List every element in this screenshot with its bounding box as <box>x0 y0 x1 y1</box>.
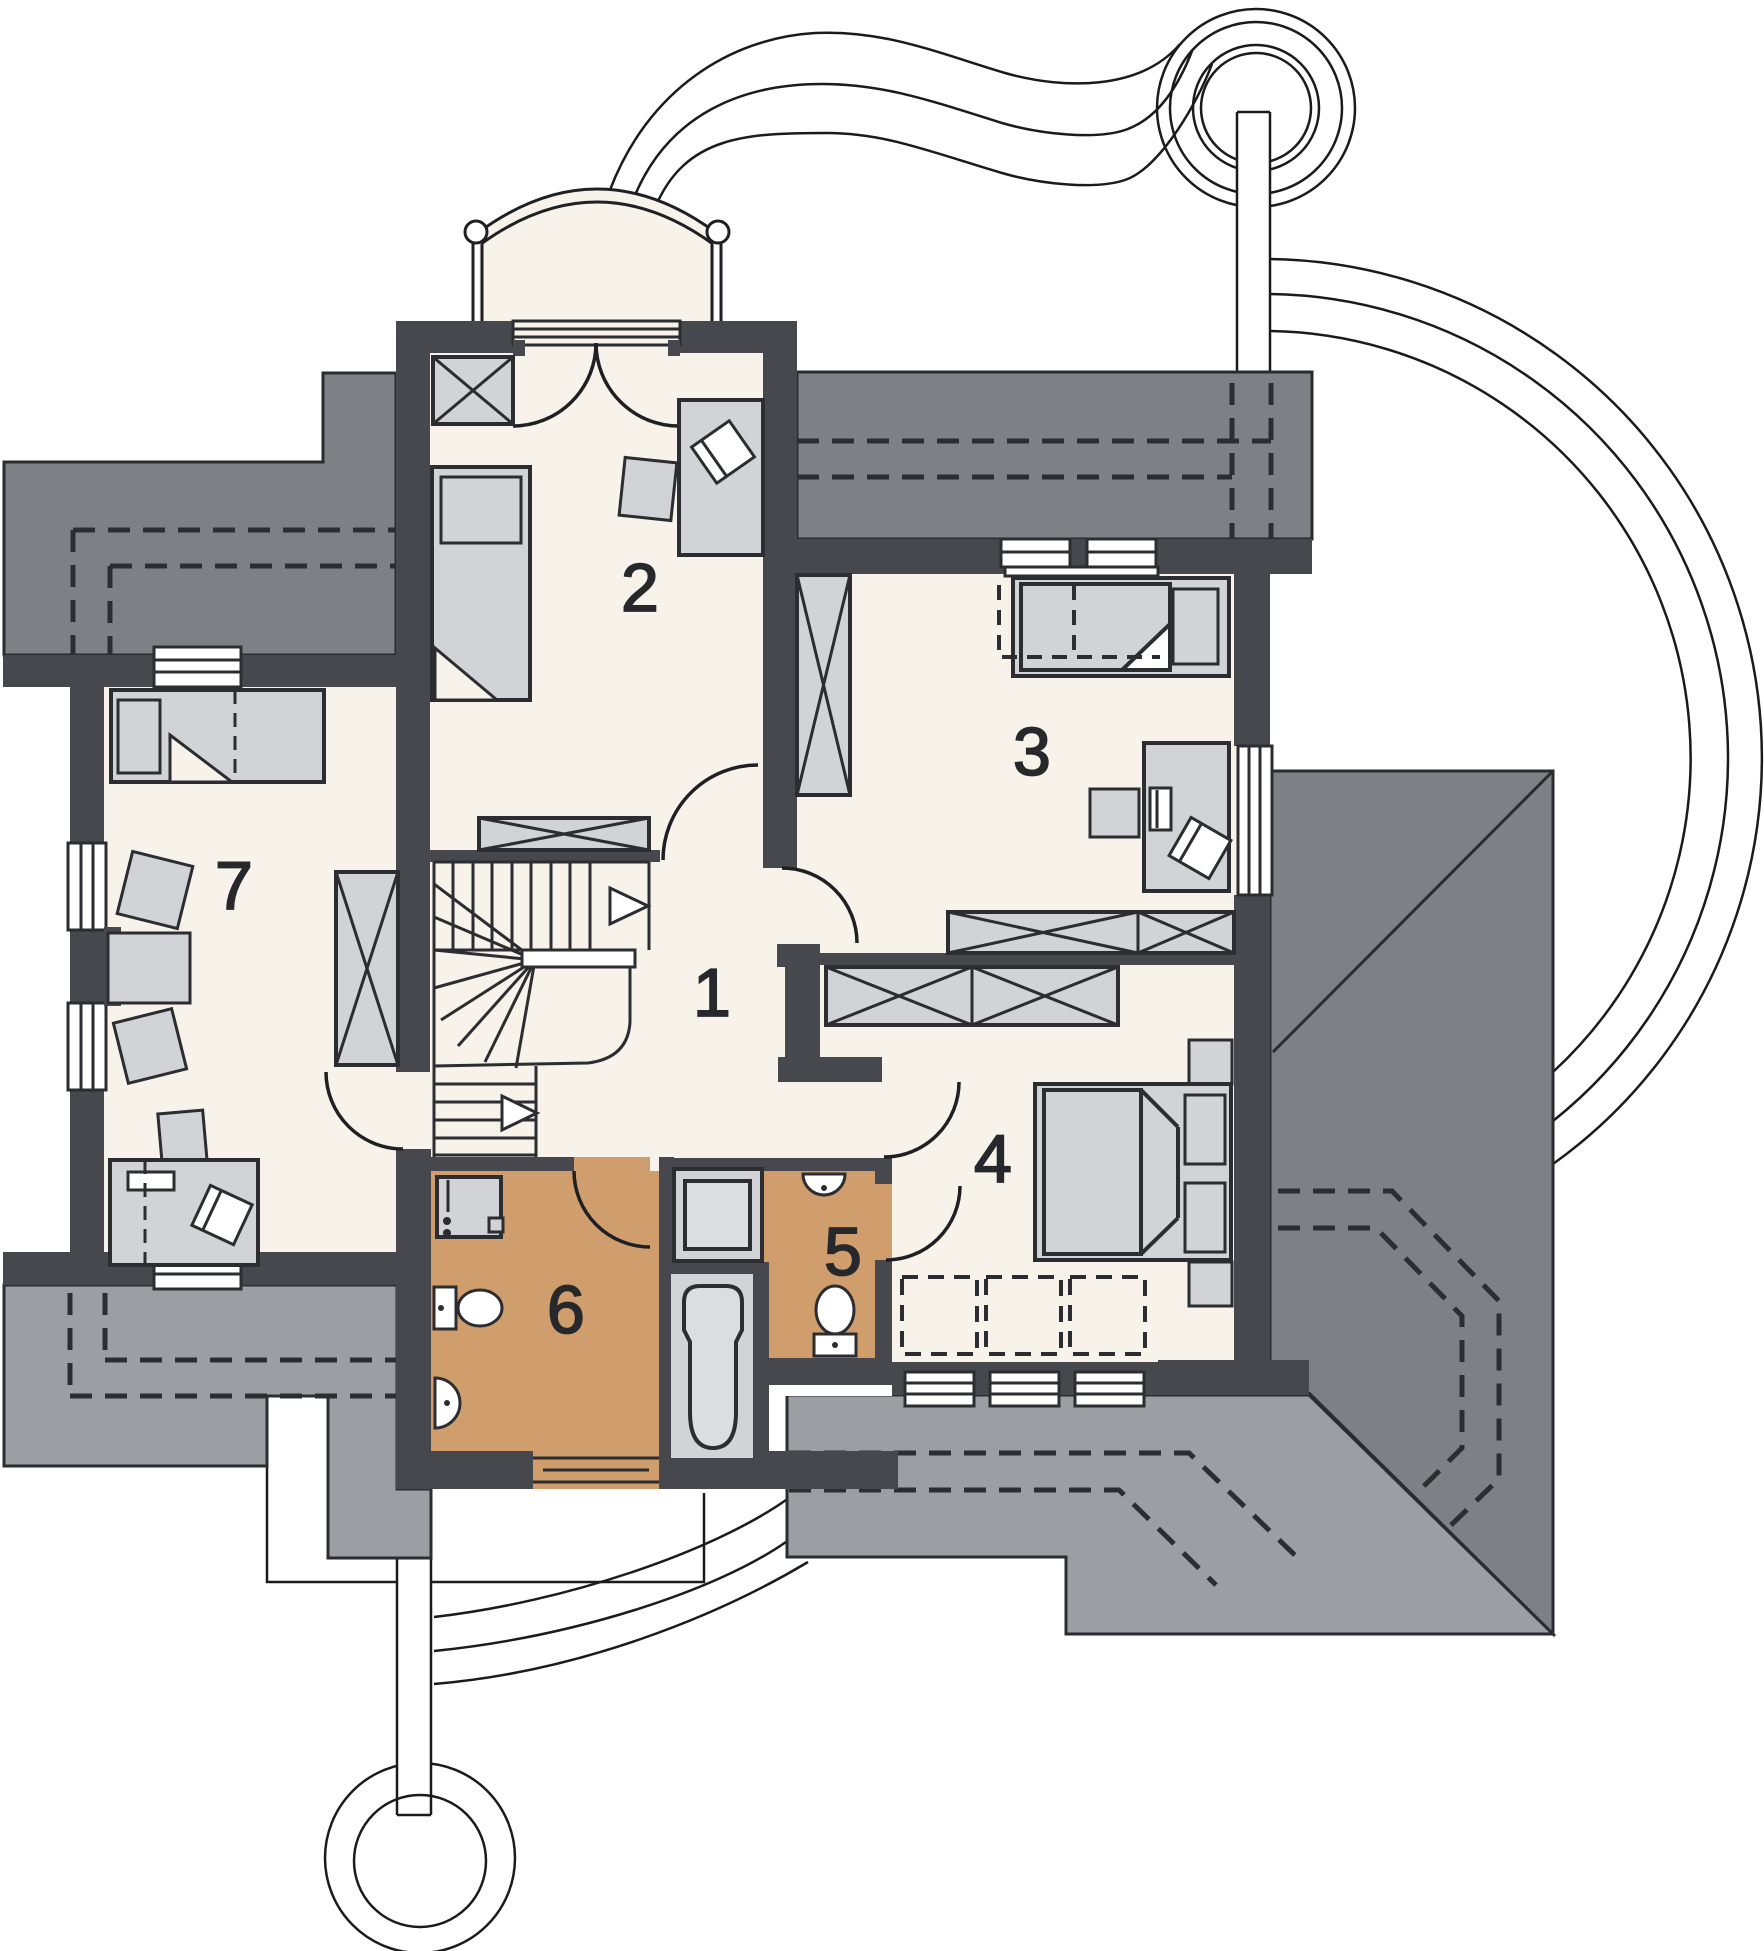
svg-text:2: 2 <box>621 550 659 626</box>
svg-text:1: 1 <box>693 955 731 1031</box>
svg-text:7: 7 <box>215 848 253 924</box>
svg-text:3: 3 <box>1013 714 1051 790</box>
svg-text:5: 5 <box>824 1214 862 1290</box>
svg-text:6: 6 <box>547 1272 585 1348</box>
svg-text:4: 4 <box>974 1121 1012 1197</box>
